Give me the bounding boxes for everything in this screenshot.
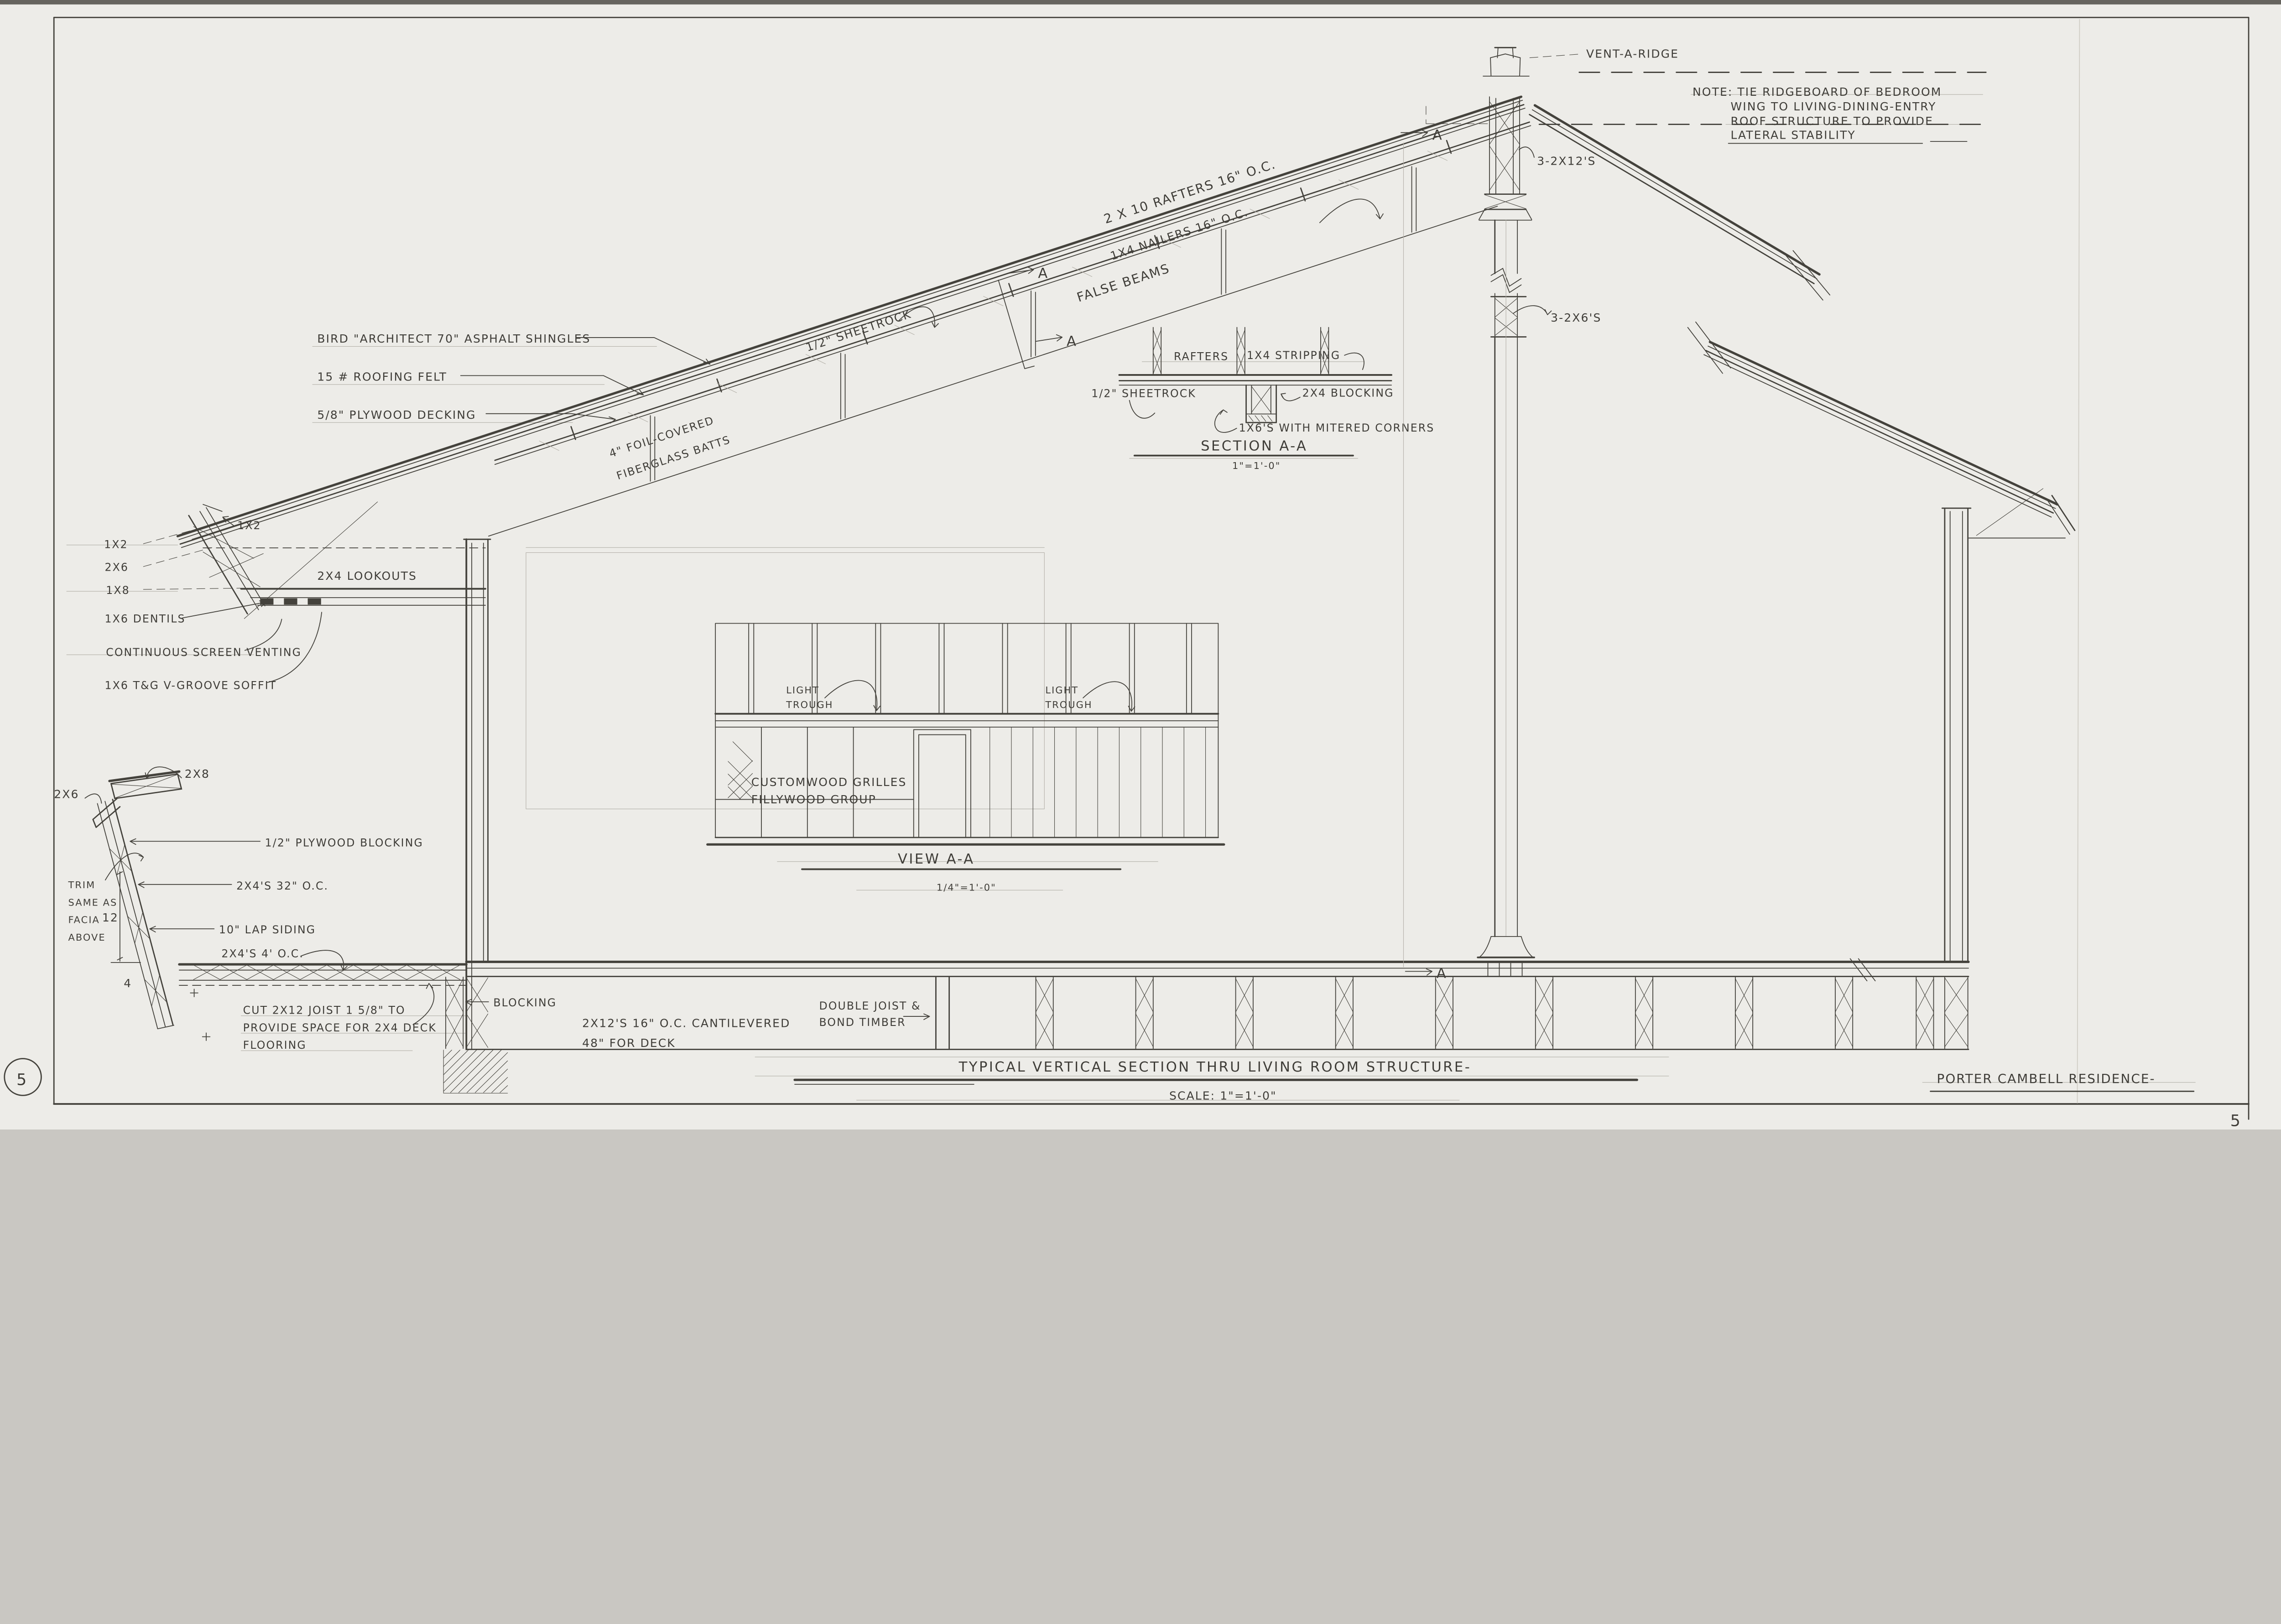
deck-labels: 2X8 2X6 1/2" PLYWOOD BLOCKING 2X4'S 32" …: [54, 767, 437, 1051]
cut-note-3: FLOORING: [243, 1039, 307, 1051]
joist-note-2: 48" FOR DECK: [582, 1036, 676, 1050]
left-roof-band: [177, 97, 1531, 547]
dentils-label: 1X6 DENTILS: [104, 612, 185, 625]
paper-top-edge: [0, 0, 2281, 5]
vent-a-ridge-label: VENT-A-RIDGE: [1586, 47, 1679, 61]
double-joist-label-2: BOND TIMBER: [819, 1016, 906, 1029]
corner-number-text: 5: [2230, 1112, 2243, 1130]
cut-note-1: CUT 2X12 JOIST 1 5/8" TO: [243, 1004, 406, 1017]
deck-sleeper-bracing: [193, 965, 460, 979]
left-wall: [464, 539, 490, 1049]
grille-hatch: [728, 742, 753, 800]
section-blocking-label: 2X4 BLOCKING: [1302, 386, 1394, 399]
ridge-note-line-3: ROOF STRUCTURE TO PROVIDE: [1730, 115, 1933, 128]
double-joist: [936, 977, 949, 1048]
sheet-scale: SCALE: 1"=1'-0": [1169, 1089, 1277, 1102]
light-trough-label-2a: LIGHT: [1045, 685, 1078, 696]
bedroom-wing: [1688, 322, 2075, 1048]
dentil-block: [308, 599, 321, 605]
decking-label: 5/8" PLYWOOD DECKING: [317, 408, 476, 422]
deck-brace-label: 2X6: [54, 788, 79, 801]
ridge-member-labels: 3-2X12'S 3-2X6'S: [1513, 147, 1601, 324]
soffit-label: 1X6 T&G V-GROOVE SOFFIT: [104, 679, 276, 692]
trim-note-1: TRIM: [68, 880, 96, 890]
floor-labels: BLOCKING 2X12'S 16" O.C. CANTILEVERED 48…: [466, 996, 930, 1050]
studs-label: 2X4'S 32" O.C.: [236, 880, 328, 892]
ridge-beam-label: 3-2X12'S: [1537, 155, 1596, 168]
title-block: TYPICAL VERTICAL SECTION THRU LIVING ROO…: [795, 1059, 2194, 1102]
sheet-title: TYPICAL VERTICAL SECTION THRU LIVING ROO…: [958, 1059, 1472, 1075]
drawing-canvas: 12 4 RAFTERS 1X4 STRIPPING 1/2" SHEETROC…: [0, 0, 2281, 1130]
light-trough-label-2b: TROUGH: [1045, 699, 1092, 710]
section-stripping-label: 1X4 STRIPPING: [1247, 349, 1340, 362]
residence-title: PORTER CAMBELL RESIDENCE-: [1937, 1071, 2155, 1086]
blueprint-sheet: 12 4 RAFTERS 1X4 STRIPPING 1/2" SHEETROC…: [0, 0, 2281, 1130]
floor-framing: [446, 959, 1969, 1050]
trim-1x2-label: 1X2: [104, 538, 128, 551]
slope-run-label: 4: [124, 977, 132, 990]
double-joist-label-1: DOUBLE JOIST &: [819, 999, 921, 1012]
view-aa-inset: LIGHT TROUGH LIGHT TROUGH CUSTOMWOOD GRI…: [708, 623, 1224, 893]
cut-marker-a-top: A: [1038, 265, 1049, 281]
dentil-block: [284, 599, 297, 605]
cut-note-2: PROVIDE SPACE FOR 2X4 DECK: [243, 1021, 437, 1034]
false-beams-label: FALSE BEAMS: [1075, 260, 1172, 305]
section-rafters-label: RAFTERS: [1174, 350, 1229, 363]
trim-note-2: SAME AS: [68, 897, 118, 908]
fascia-1x2-label: 1X2: [237, 519, 261, 532]
ridge-assembly: [1478, 47, 1534, 976]
post-label: 3-2X6'S: [1551, 311, 1601, 324]
cut-marker-a-bottom: A: [1067, 333, 1078, 349]
trim-note-3: FACIA: [68, 915, 100, 926]
grilles-label-1: CUSTOMWOOD GRILLES: [751, 776, 907, 789]
section-title: SECTION A-A: [1201, 438, 1307, 454]
shingles-label: BIRD "ARCHITECT 70" ASPHALT SHINGLES: [317, 332, 590, 345]
siding-label: 10" LAP SIDING: [219, 923, 316, 936]
deck-cap-label: 2X8: [185, 767, 210, 781]
roof-cut-marker: A A: [998, 265, 1078, 369]
sleepers-label: 2X4'S 4' O.C.: [221, 947, 304, 960]
wall-beyond-outline: [526, 547, 1044, 809]
deck-detail: 12 4: [93, 771, 466, 1041]
view-scale: 1/4"=1'-0": [937, 882, 996, 893]
trim-note-4: ABOVE: [68, 932, 106, 943]
venting-label: CONTINUOUS SCREEN VENTING: [106, 646, 302, 659]
siding-lines: [990, 727, 1206, 838]
plywood-blocking-label: 1/2" PLYWOOD BLOCKING: [265, 836, 423, 849]
floor-marker-a: A: [1437, 965, 1448, 981]
blocking-label: BLOCKING: [493, 996, 557, 1009]
ridge-section-marker: A A: [1401, 106, 1491, 981]
light-trough-label-1a: LIGHT: [786, 685, 819, 696]
trim-1x8-label: 1X8: [106, 584, 130, 597]
section-mitered-label: 1X6'S WITH MITERED CORNERS: [1239, 422, 1435, 434]
slope-dimension: 12 4: [102, 872, 141, 990]
ridge-note-line-1: NOTE: TIE RIDGEBOARD OF BEDROOM: [1693, 85, 1942, 99]
foundation-pier: [443, 1050, 507, 1093]
slope-rise-label: 12: [102, 911, 119, 924]
light-trough-label-1b: TROUGH: [786, 699, 833, 710]
section-scale: 1"=1'-0": [1232, 460, 1281, 471]
ridge-note-line-4: LATERAL STABILITY: [1730, 129, 1855, 142]
ridge-marker-a: A: [1432, 127, 1443, 143]
rafters-label: 2 X 10 RAFTERS 16" O.C.: [1102, 156, 1277, 227]
view-title: VIEW A-A: [898, 851, 975, 867]
eave-detail: [189, 502, 485, 619]
grilles-label-2: FILLYWOOD GROUP: [751, 793, 876, 806]
section-aa-inset: RAFTERS 1X4 STRIPPING 1/2" SHEETROCK 2X4…: [1091, 328, 1434, 471]
section-sheetrock-label: 1/2" SHEETROCK: [1091, 387, 1196, 400]
ridge-note-line-2: WING TO LIVING-DINING-ENTRY: [1730, 100, 1936, 113]
ridge-annotations: VENT-A-RIDGE NOTE: TIE RIDGEBOARD OF BED…: [1530, 47, 1986, 144]
plus-marks: [190, 989, 210, 1041]
trim-2x6-label: 2X6: [104, 561, 129, 574]
felt-label: 15 # ROOFING FELT: [317, 370, 447, 383]
sheet-border: [54, 17, 2249, 1119]
lookouts-label: 2X4 LOOKOUTS: [317, 569, 417, 583]
joist-note-1: 2X12'S 16" O.C. CANTILEVERED: [582, 1017, 790, 1030]
page-number-text: 5: [16, 1071, 29, 1089]
